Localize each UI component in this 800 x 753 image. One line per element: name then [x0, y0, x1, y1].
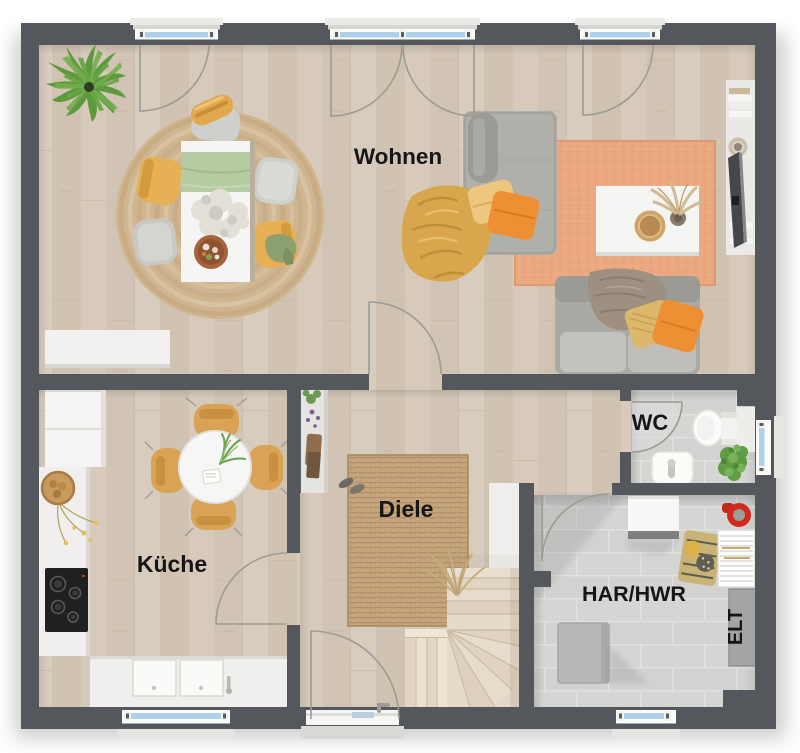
svg-text:HAR/HWR: HAR/HWR — [582, 582, 686, 606]
svg-text:ELT: ELT — [725, 609, 747, 645]
svg-text:Küche: Küche — [137, 551, 207, 577]
svg-text:Diele: Diele — [379, 496, 434, 522]
svg-text:Wohnen: Wohnen — [354, 144, 442, 169]
svg-text:WC: WC — [632, 410, 669, 435]
